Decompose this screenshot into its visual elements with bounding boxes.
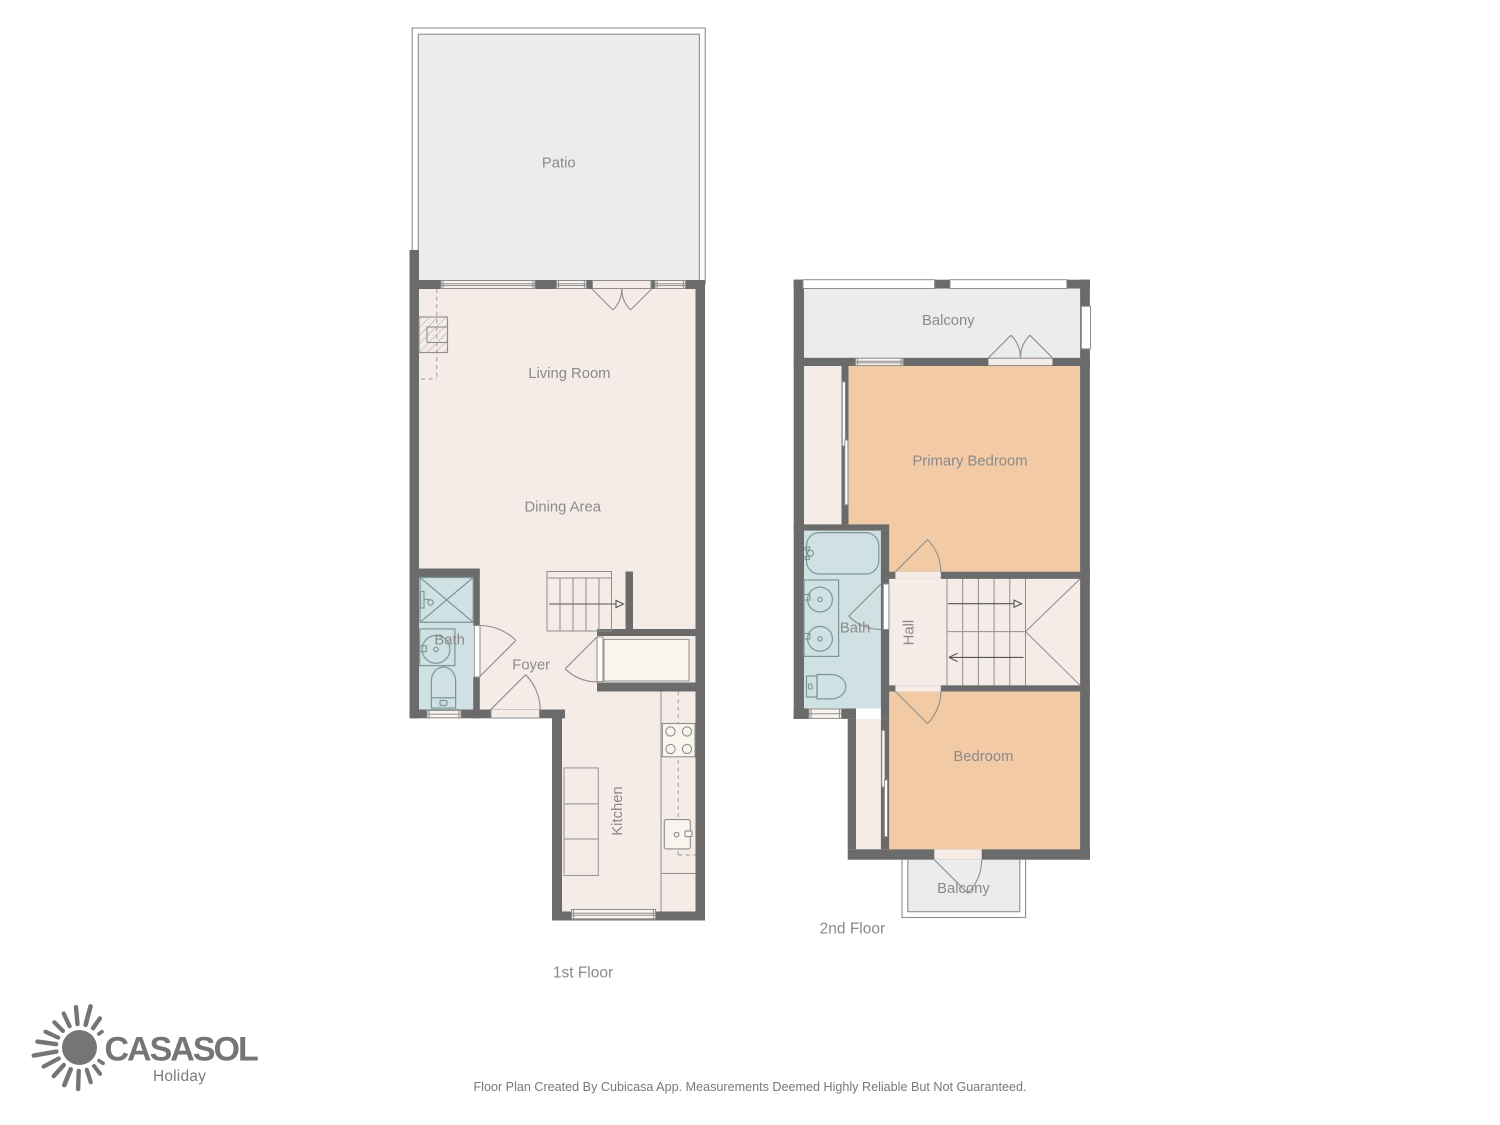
svg-text:Bath: Bath xyxy=(840,621,870,637)
svg-text:Kitchen: Kitchen xyxy=(610,786,626,835)
svg-text:Bedroom: Bedroom xyxy=(953,749,1013,765)
svg-text:Patio: Patio xyxy=(542,156,576,172)
svg-text:Living Room: Living Room xyxy=(528,366,610,382)
svg-text:2nd Floor: 2nd Floor xyxy=(820,921,885,938)
svg-text:1st Floor: 1st Floor xyxy=(553,965,613,982)
svg-text:Holiday: Holiday xyxy=(153,1068,206,1085)
svg-text:Bath: Bath xyxy=(434,632,464,648)
svg-text:Balcony: Balcony xyxy=(937,881,990,897)
svg-text:Primary Bedroom: Primary Bedroom xyxy=(912,454,1027,470)
svg-text:Floor Plan Created By Cubicasa: Floor Plan Created By Cubicasa App. Meas… xyxy=(473,1080,1026,1094)
svg-text:CASASOL: CASASOL xyxy=(105,1031,258,1069)
svg-text:Balcony: Balcony xyxy=(922,313,975,329)
svg-text:Foyer: Foyer xyxy=(512,658,550,674)
svg-text:Hall: Hall xyxy=(902,620,918,646)
svg-text:Dining Area: Dining Area xyxy=(524,500,601,516)
